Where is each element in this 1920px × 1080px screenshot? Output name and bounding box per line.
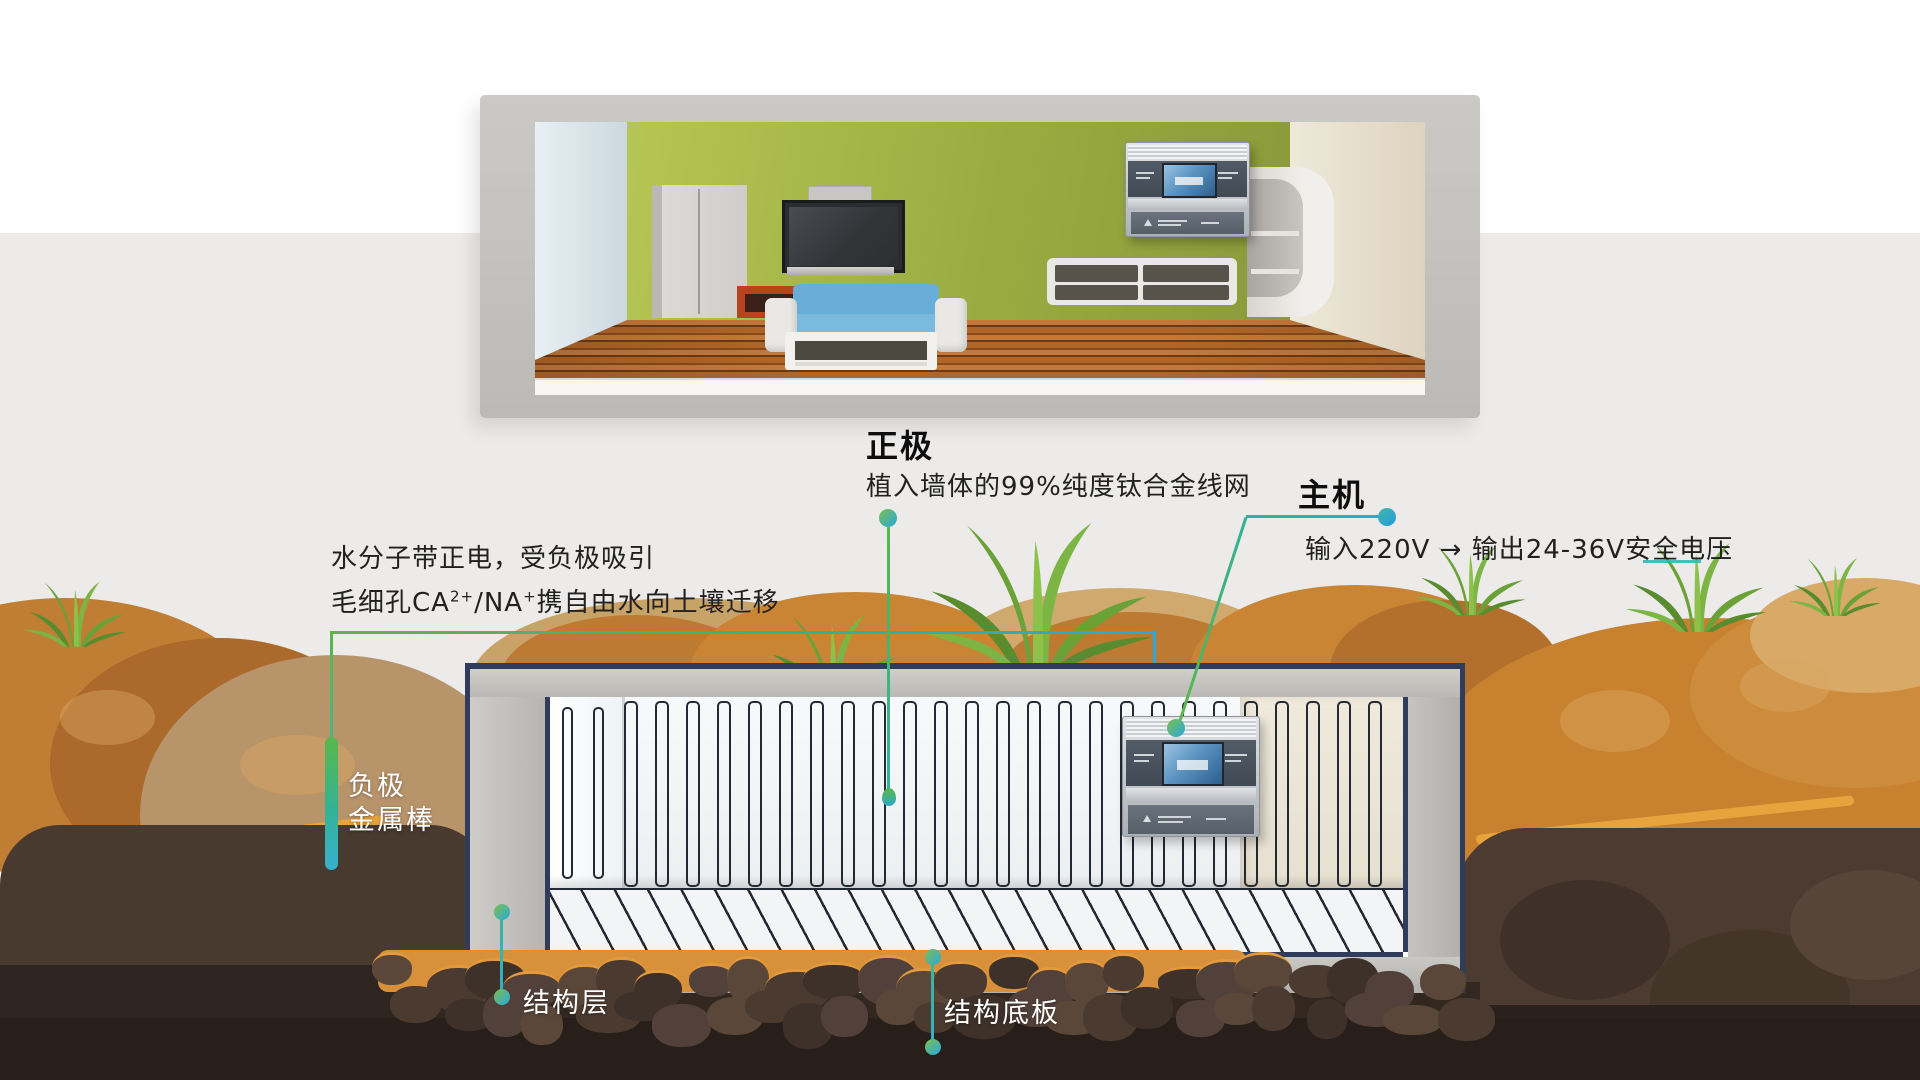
sofa-armrest	[935, 298, 967, 352]
mesh-wire-loop	[1089, 701, 1103, 887]
negative-line1: 负极	[348, 771, 406, 802]
wire-mesh-back	[550, 697, 1403, 892]
sideboard-slot	[1055, 265, 1138, 282]
mesh-wire-loop	[624, 701, 638, 887]
connector-dot-structure-top	[494, 904, 510, 920]
leader-line-horizontal	[330, 631, 1156, 634]
structure-outline	[1403, 697, 1408, 952]
mesh-wire-loop	[841, 701, 855, 887]
sideboard-slot	[1143, 265, 1229, 282]
leader-line-positive	[887, 527, 890, 790]
host-device-lower	[1122, 716, 1260, 837]
device-mid-trim	[1128, 199, 1246, 210]
structure-layer-label: 结构层	[523, 981, 610, 1020]
device-front-panel	[1126, 740, 1257, 786]
host-unit-desc: 输入220V → 输出24-36V安全电压	[1305, 529, 1733, 566]
grass-tuft	[1778, 556, 1890, 616]
sideboard-slot	[1143, 285, 1229, 300]
host-device-upper	[1125, 142, 1250, 237]
positive-electrode-title: 正极	[866, 421, 934, 467]
television	[782, 200, 905, 273]
mesh-wire-loop	[748, 701, 762, 887]
basement-interior	[550, 697, 1403, 952]
structural-wall-left	[470, 697, 545, 957]
mesh-wire-loop	[779, 701, 793, 887]
warning-icon	[1144, 219, 1152, 226]
device-top-vent	[1128, 145, 1246, 159]
device-lower-drawer	[1128, 805, 1253, 834]
connector-dot-plate-top	[925, 949, 941, 965]
connector-dot-positive	[879, 509, 897, 527]
connector-dot-structure-bottom	[494, 989, 510, 1005]
migration-line1: 水分子带正电，受负极吸引	[331, 544, 655, 574]
sideboard-slot	[1055, 285, 1138, 300]
positive-electrode-desc: 植入墙体的99%纯度钛合金线网	[866, 466, 1251, 503]
structure-outline	[1460, 669, 1465, 993]
electro-osmosis-diagram: 正极 植入墙体的99%纯度钛合金线网 主机 输入220V → 输出24-36V安…	[0, 0, 1920, 1080]
mesh-wire-loop	[686, 701, 700, 887]
soil-stone-highlight	[1560, 690, 1670, 752]
connector-drop-positive	[882, 788, 896, 806]
mesh-wire-loop	[562, 707, 573, 879]
device-screen	[1162, 163, 1218, 198]
device-top-vent	[1126, 719, 1257, 737]
base-plate-label: 结构底板	[944, 991, 1060, 1030]
mesh-wire-loop	[1337, 701, 1351, 887]
wardrobe	[652, 185, 747, 318]
leader-line-structure-layer	[500, 911, 503, 998]
mesh-wire-loop	[996, 701, 1010, 887]
tv-stand	[787, 267, 894, 276]
negative-electrode-label: 负极 金属棒	[348, 770, 435, 838]
mesh-wire-loop	[1027, 701, 1041, 887]
soil-rock	[1500, 880, 1670, 1000]
migration-line2: 毛细孔CA2+/NA+携自由水向土壤迁移	[331, 588, 780, 618]
leader-line-negative-vertical	[330, 633, 333, 740]
mesh-wire-loop	[1058, 701, 1072, 887]
room-interior	[535, 122, 1425, 395]
mesh-wire-loop	[965, 701, 979, 887]
structural-wall-right	[1408, 697, 1460, 957]
mesh-wire-loop	[593, 707, 604, 879]
device-mid-trim	[1126, 788, 1257, 802]
device-front-panel	[1128, 161, 1246, 197]
mesh-wire-loop	[903, 701, 917, 887]
mesh-wire-loop	[810, 701, 824, 887]
floor-slab	[535, 378, 1425, 395]
mesh-wire-loop	[655, 701, 669, 887]
warning-icon	[1143, 815, 1151, 822]
mesh-wire-loop	[1306, 701, 1320, 887]
water-migration-text: 水分子带正电，受负极吸引 毛细孔CA2+/NA+携自由水向土壤迁移	[331, 541, 780, 622]
host-unit-title: 主机	[1298, 470, 1366, 516]
gravel-glow-strip	[378, 950, 1246, 992]
basement-cutaway	[465, 663, 1465, 993]
mesh-floor	[550, 888, 1403, 952]
connector-dot-device	[1167, 719, 1185, 737]
negative-electrode-rod	[325, 737, 338, 870]
grass-tuft	[18, 578, 130, 648]
coffee-table	[785, 332, 937, 370]
connector-dot-host	[1378, 508, 1396, 526]
mesh-wire-loop	[1275, 701, 1289, 887]
mesh-wire-loop	[1368, 701, 1382, 887]
connector-dot-plate-bottom	[925, 1039, 941, 1055]
device-lower-drawer	[1131, 212, 1244, 234]
leader-line-base-plate	[931, 956, 934, 1048]
curved-shelf-unit	[1247, 167, 1334, 317]
ceiling-slab	[470, 669, 1460, 699]
wood-floor-shading	[535, 312, 1425, 378]
mesh-wire-loop	[717, 701, 731, 887]
room-above-ground	[480, 95, 1480, 418]
device-screen	[1162, 742, 1223, 786]
mesh-wire-loop	[934, 701, 948, 887]
negative-line2: 金属棒	[348, 805, 435, 836]
soil-stone-highlight	[60, 690, 155, 745]
soil-stone-highlight	[1740, 660, 1830, 712]
